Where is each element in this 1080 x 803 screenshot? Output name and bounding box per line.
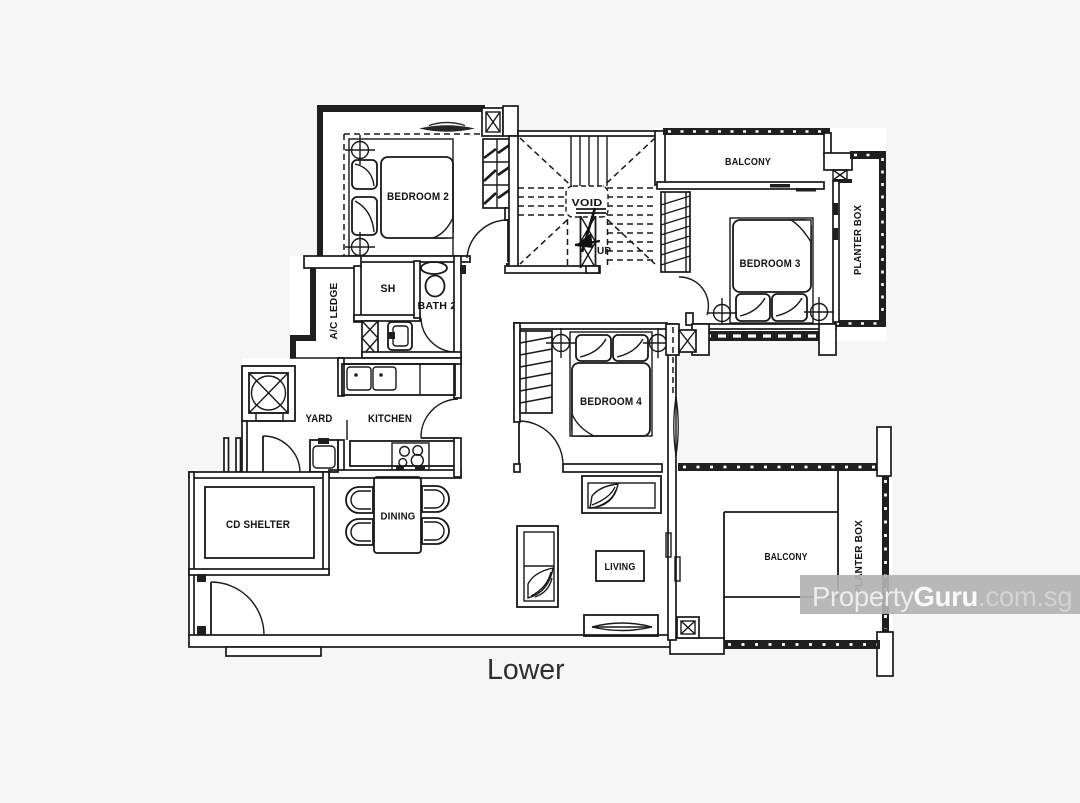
svg-text:PropertyGuru.com.sg: PropertyGuru.com.sg <box>812 581 1072 612</box>
svg-text:LIVING: LIVING <box>605 562 636 573</box>
svg-text:VOID: VOID <box>572 198 603 209</box>
svg-text:BALCONY: BALCONY <box>725 157 771 168</box>
svg-text:BEDROOM 4: BEDROOM 4 <box>580 396 643 408</box>
svg-text:BATH 2: BATH 2 <box>418 301 457 312</box>
svg-text:SH: SH <box>381 283 396 295</box>
svg-text:BALCONY: BALCONY <box>765 552 808 563</box>
svg-text:BEDROOM 3: BEDROOM 3 <box>740 258 801 270</box>
svg-text:KITCHEN: KITCHEN <box>368 413 412 425</box>
svg-text:CD SHELTER: CD SHELTER <box>226 519 290 531</box>
svg-text:PLANTER BOX: PLANTER BOX <box>853 205 864 275</box>
svg-text:BEDROOM 2: BEDROOM 2 <box>387 191 449 203</box>
svg-text:A/C LEDGE: A/C LEDGE <box>329 282 340 339</box>
svg-text:DINING: DINING <box>381 512 416 523</box>
svg-text:UP: UP <box>597 246 611 257</box>
svg-text:YARD: YARD <box>306 413 333 425</box>
svg-text:Lower: Lower <box>487 654 565 686</box>
